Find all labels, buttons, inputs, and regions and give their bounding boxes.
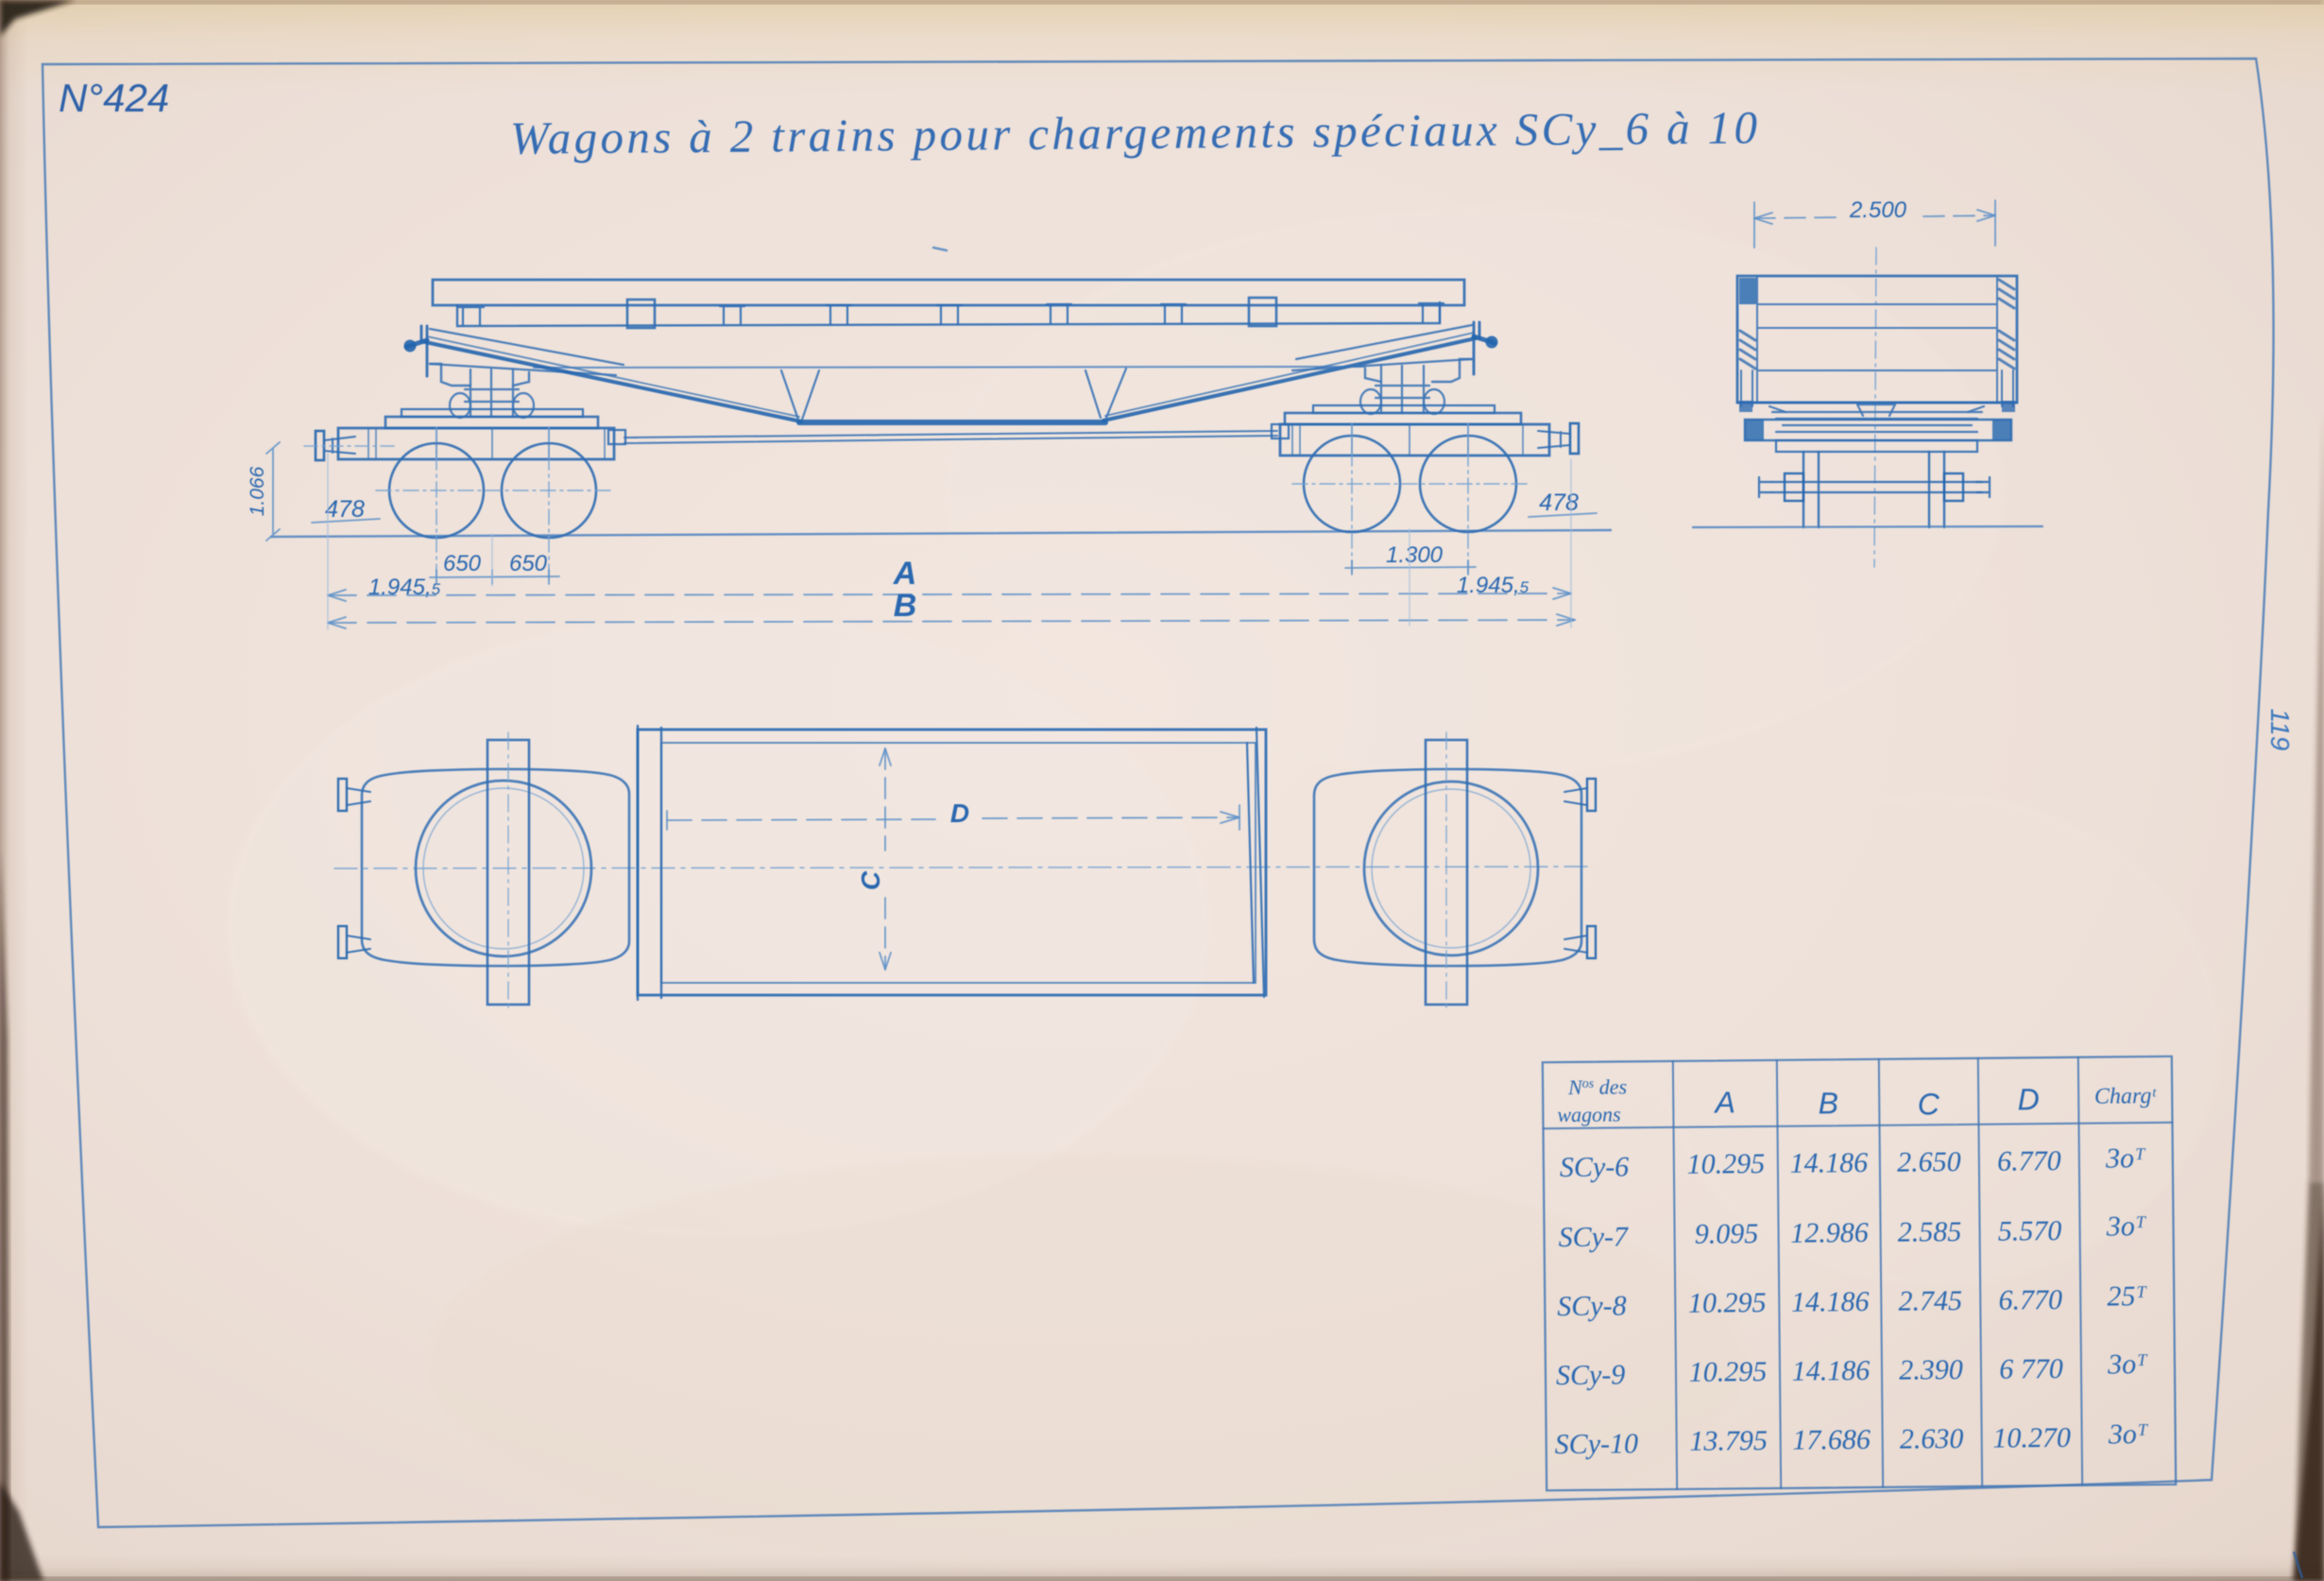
svg-text:2.745: 2.745 [1898, 1285, 1962, 1317]
svg-text:2.630: 2.630 [1900, 1423, 1964, 1455]
svg-text:2.500: 2.500 [1849, 198, 1907, 223]
svg-text:25ᵀ: 25ᵀ [2107, 1280, 2147, 1312]
svg-text:10.295: 10.295 [1686, 1148, 1765, 1180]
svg-text:2.650: 2.650 [1897, 1146, 1961, 1178]
svg-text:9.095: 9.095 [1695, 1218, 1759, 1250]
svg-text:10.295: 10.295 [1688, 1287, 1767, 1319]
svg-text:2.585: 2.585 [1898, 1216, 1962, 1248]
svg-text:C: C [856, 870, 885, 890]
svg-text:wagons: wagons [1557, 1102, 1620, 1126]
svg-text:14.186: 14.186 [1789, 1147, 1868, 1179]
svg-text:5.570: 5.570 [1998, 1215, 2062, 1247]
svg-text:SCy-6: SCy-6 [1560, 1151, 1630, 1183]
svg-text:14.186: 14.186 [1792, 1355, 1871, 1387]
svg-text:A: A [1713, 1085, 1735, 1119]
svg-text:3oᵀ: 3oᵀ [2107, 1349, 2148, 1380]
svg-text:17.686: 17.686 [1792, 1424, 1871, 1456]
svg-text:12.986: 12.986 [1790, 1217, 1869, 1249]
svg-text:B: B [894, 588, 917, 624]
svg-text:14.186: 14.186 [1791, 1286, 1870, 1318]
svg-text:D: D [2018, 1082, 2040, 1116]
svg-text:1.945,5: 1.945,5 [368, 575, 441, 600]
svg-text:2.390: 2.390 [1899, 1354, 1963, 1386]
svg-text:3oᵀ: 3oᵀ [2105, 1143, 2146, 1174]
svg-text:SCy-7: SCy-7 [1558, 1221, 1630, 1253]
svg-text:SCy-10: SCy-10 [1555, 1428, 1639, 1460]
svg-text:6.770: 6.770 [1998, 1284, 2062, 1316]
svg-text:3oᵀ: 3oᵀ [2106, 1211, 2147, 1242]
svg-text:Chargᵗ: Chargᵗ [2094, 1084, 2158, 1109]
svg-text:B: B [1818, 1086, 1838, 1120]
svg-text:D: D [950, 799, 969, 828]
svg-text:Nos des: Nos des [1567, 1074, 1627, 1099]
svg-text:478: 478 [1539, 490, 1579, 516]
svg-text:1.066: 1.066 [247, 466, 268, 516]
svg-text:1.300: 1.300 [1386, 542, 1444, 568]
svg-text:10.270: 10.270 [1992, 1422, 2071, 1454]
svg-text:SCy-8: SCy-8 [1557, 1290, 1627, 1322]
svg-text:A: A [893, 556, 917, 592]
svg-text:119: 119 [2265, 709, 2295, 751]
svg-text:N°424: N°424 [59, 76, 169, 120]
svg-text:6.770: 6.770 [1997, 1145, 2061, 1177]
svg-text:10.295: 10.295 [1689, 1356, 1768, 1388]
svg-text:C: C [1918, 1087, 1940, 1121]
svg-text:6 770: 6 770 [1999, 1353, 2063, 1385]
svg-text:650: 650 [509, 551, 548, 576]
svg-text:3oᵀ: 3oᵀ [2108, 1418, 2149, 1450]
svg-text:SCy-9: SCy-9 [1556, 1359, 1626, 1391]
svg-text:650: 650 [443, 551, 482, 576]
svg-text:Wagons à 2 trains pour chargem: Wagons à 2 trains pour chargements spéci… [510, 101, 1757, 164]
svg-text:478: 478 [325, 496, 365, 523]
svg-text:13.795: 13.795 [1689, 1425, 1768, 1457]
